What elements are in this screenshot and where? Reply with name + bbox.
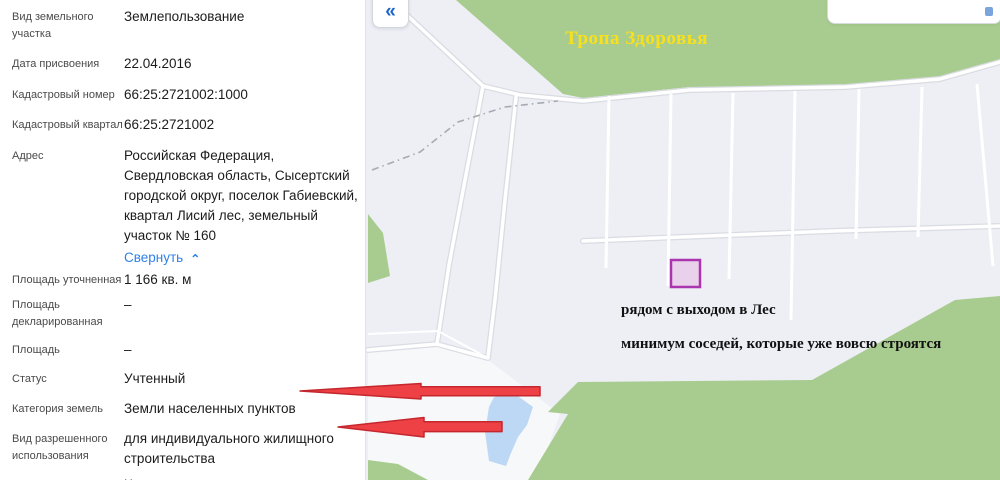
field-label: Форма собственности: [12, 475, 124, 480]
field-value: –: [124, 340, 359, 360]
double-chevron-left-icon: «: [385, 2, 396, 27]
field-label: Кадастровый номер: [12, 85, 124, 104]
field-label: Площадь: [12, 340, 124, 359]
field-label: Адрес: [12, 146, 124, 165]
field-label: Категория земель: [12, 399, 124, 418]
field-row-land-kind: Вид земельного участка Землепользование: [12, 7, 359, 43]
chevron-up-icon: ⌃: [190, 250, 200, 268]
parcel-info-panel: Вид земельного участка Землепользование …: [0, 0, 366, 480]
forest-area-bottom-right: [528, 296, 1000, 480]
field-value: Земли населенных пунктов: [124, 399, 359, 419]
collapse-panel-button[interactable]: «: [372, 0, 409, 28]
footpath-dashed-line: [372, 101, 558, 170]
collapse-address-link[interactable]: Свернуть ⌃: [124, 249, 359, 267]
field-row-area-refined: Площадь уточненная 1 166 кв. м: [12, 270, 359, 290]
map-annotation-2: минимум соседей, которые уже вовсю строя…: [621, 336, 941, 353]
field-label: Площадь уточненная: [12, 270, 124, 289]
field-label: Вид разрешенного использования: [12, 429, 124, 465]
field-label: Дата присвоения: [12, 54, 124, 73]
field-label: Площадь декларированная: [12, 295, 124, 331]
field-row-cadastral-number: Кадастровый номер 66:25:2721002:1000: [12, 85, 359, 105]
field-row-cadastral-block: Кадастровый квартал 66:25:2721002: [12, 115, 359, 135]
field-value: Частная: [124, 475, 359, 480]
field-value: 1 166 кв. м: [124, 270, 359, 290]
collapse-address-label: Свернуть: [124, 249, 183, 267]
field-row-land-category: Категория земель Земли населенных пункто…: [12, 399, 359, 419]
field-row-area-declared: Площадь декларированная –: [12, 295, 359, 331]
map-annotation-1: рядом с выходом в Лес: [621, 302, 776, 319]
field-label: Кадастровый квартал: [12, 115, 124, 134]
field-row-address: Адрес Российская Федерация, Свердловская…: [12, 146, 359, 267]
forest-label: Тропа Здоровья: [565, 28, 708, 50]
field-row-area: Площадь –: [12, 340, 359, 360]
field-row-ownership: Форма собственности Частная: [12, 475, 359, 480]
map-light-zone: [368, 346, 560, 480]
map-toolbar-panel: [827, 0, 1000, 24]
forest-area-left-wedge: [368, 214, 390, 283]
field-value: Российская Федерация, Свердловская облас…: [124, 146, 359, 267]
address-text: Российская Федерация, Свердловская облас…: [124, 146, 359, 246]
highlighted-parcel[interactable]: [671, 260, 700, 287]
map-canvas[interactable]: Тропа Здоровья рядом с выходом в Лес мин…: [366, 0, 1000, 480]
field-value: для индивидуального жилищного строительс…: [124, 429, 359, 469]
field-label: Статус: [12, 369, 124, 388]
field-row-date: Дата присвоения 22.04.2016: [12, 54, 359, 74]
field-row-status: Статус Учтенный: [12, 369, 359, 389]
field-value: 22.04.2016: [124, 54, 359, 74]
cadastral-map-app: Вид земельного участка Землепользование …: [0, 0, 1000, 480]
field-value: Учтенный: [124, 369, 359, 389]
field-value: –: [124, 295, 359, 315]
field-row-permitted-use: Вид разрешенного использования для индив…: [12, 429, 359, 469]
field-value: 66:25:2721002: [124, 115, 359, 135]
field-label: Вид земельного участка: [12, 7, 124, 43]
map-tool-icon[interactable]: [985, 7, 993, 16]
field-value: 66:25:2721002:1000: [124, 85, 359, 105]
field-value: Землепользование: [124, 7, 359, 27]
